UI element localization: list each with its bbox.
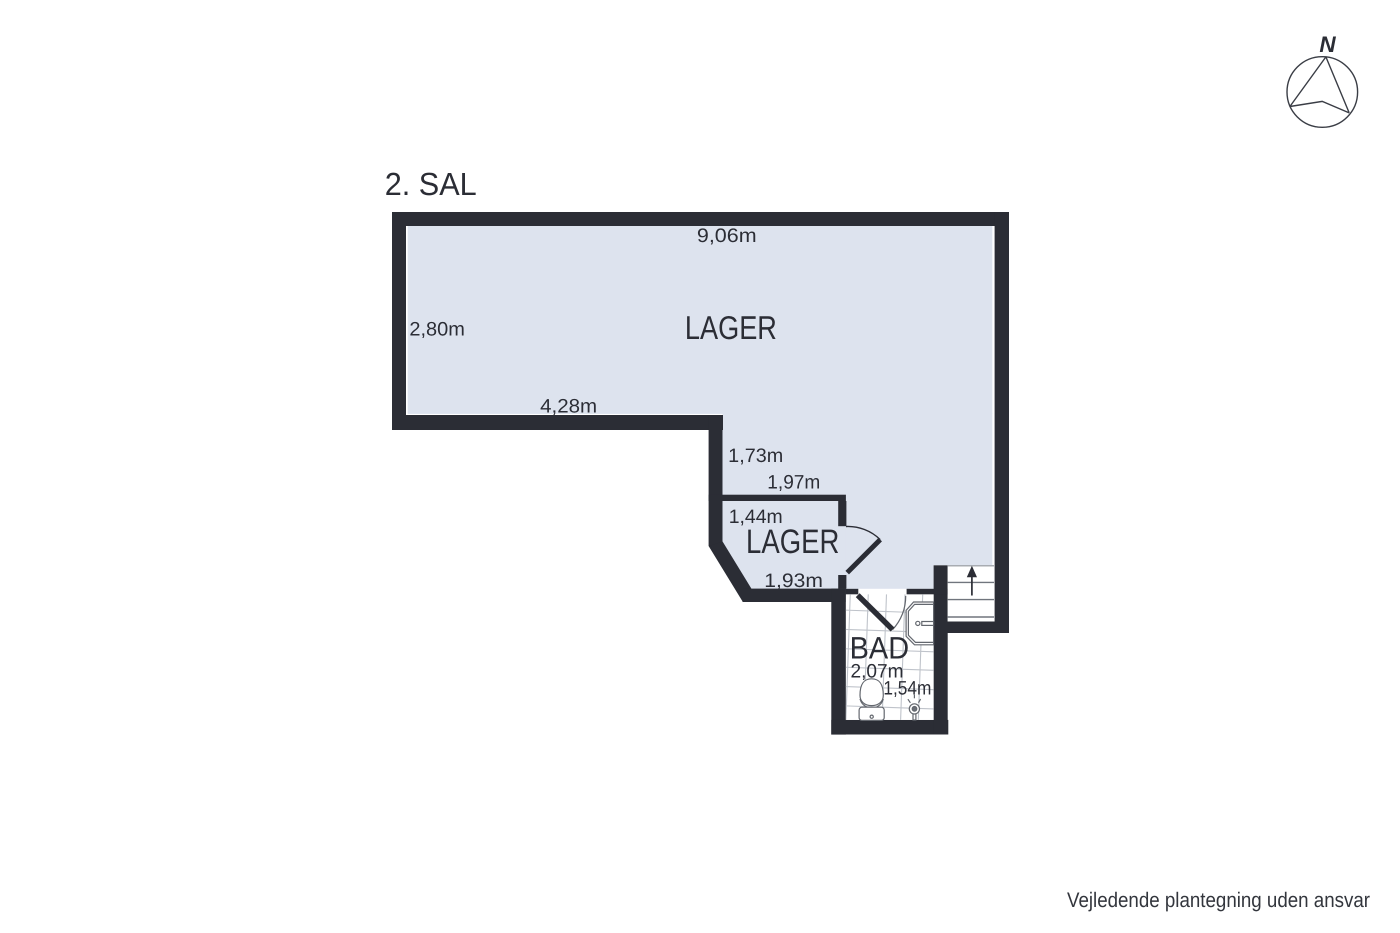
- svg-text:4,28m: 4,28m: [540, 396, 597, 418]
- svg-text:1,97m: 1,97m: [767, 472, 820, 494]
- svg-text:1,93m: 1,93m: [764, 570, 823, 592]
- svg-text:2,80m: 2,80m: [409, 319, 465, 341]
- svg-text:1,54m: 1,54m: [883, 678, 931, 700]
- svg-text:2. SAL: 2. SAL: [385, 166, 477, 202]
- svg-text:9,06m: 9,06m: [697, 225, 757, 247]
- svg-text:1,73m: 1,73m: [728, 445, 783, 467]
- svg-text:Vejledende plantegning uden an: Vejledende plantegning uden ansvar: [1067, 889, 1370, 912]
- svg-text:N: N: [1319, 32, 1336, 57]
- svg-text:LAGER: LAGER: [746, 523, 839, 561]
- svg-text:LAGER: LAGER: [685, 309, 777, 346]
